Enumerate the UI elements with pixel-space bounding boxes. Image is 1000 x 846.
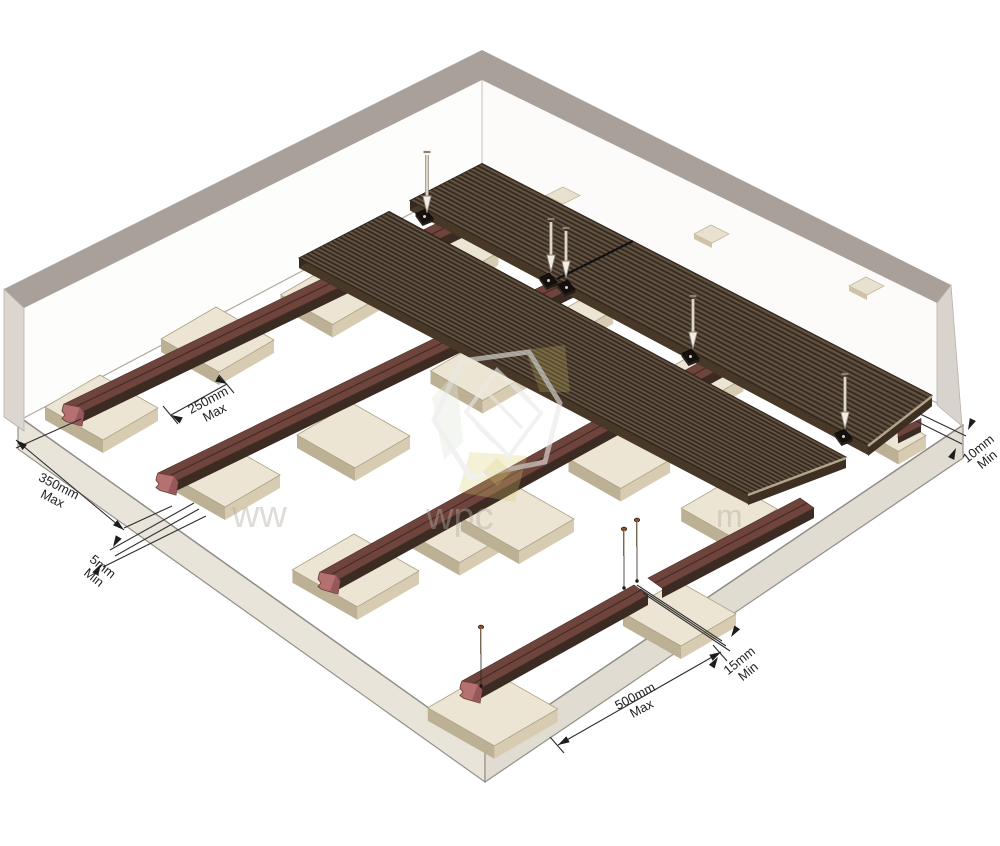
svg-text:wpc: wpc: [425, 496, 494, 538]
svg-text:m: m: [716, 498, 743, 534]
svg-text:ww: ww: [231, 494, 287, 536]
